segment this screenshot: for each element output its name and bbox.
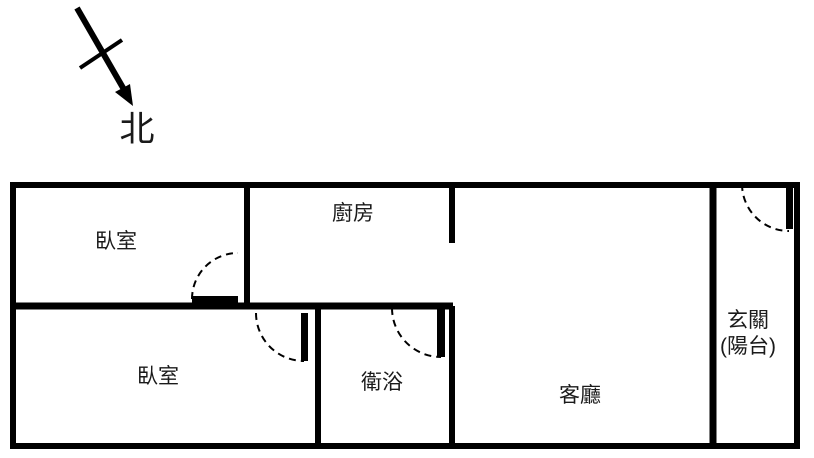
north-arrow-head: [115, 84, 133, 106]
room-label-entrance-line2: (陽台): [720, 334, 776, 360]
room-label-entrance: 玄關 (陽台): [720, 308, 776, 360]
door-swing-entrance: [742, 184, 789, 231]
room-label-entrance-line1: 玄關: [720, 308, 776, 334]
room-label-bedroom-bottom: 臥室: [137, 366, 179, 388]
room-label-bedroom-top: 臥室: [95, 231, 137, 253]
north-arrow-shaft: [77, 8, 126, 93]
north-label: 北: [119, 112, 154, 149]
door-bathroom: [437, 308, 445, 357]
room-label-bathroom: 衛浴: [361, 372, 403, 394]
floorplan-drawing: [0, 0, 814, 458]
door-entrance: [786, 183, 793, 229]
door-swing-bedroom-bottom: [256, 313, 304, 361]
door-swing-bedroom-top: [192, 253, 238, 299]
door-swing-bathroom: [392, 308, 441, 357]
north-arrow-icon: [77, 8, 133, 106]
door-bedroom-bottom: [301, 313, 308, 361]
room-label-kitchen: 廚房: [332, 203, 374, 225]
doors: [192, 183, 793, 361]
door-swings: [192, 184, 789, 361]
floorplan-image: 北 臥室 廚房 臥室 衛浴 客廳 玄關 (陽台): [0, 0, 814, 458]
room-label-living-room: 客廳: [559, 385, 601, 407]
outer-walls: [13, 185, 797, 446]
door-bedroom-top: [192, 296, 238, 303]
